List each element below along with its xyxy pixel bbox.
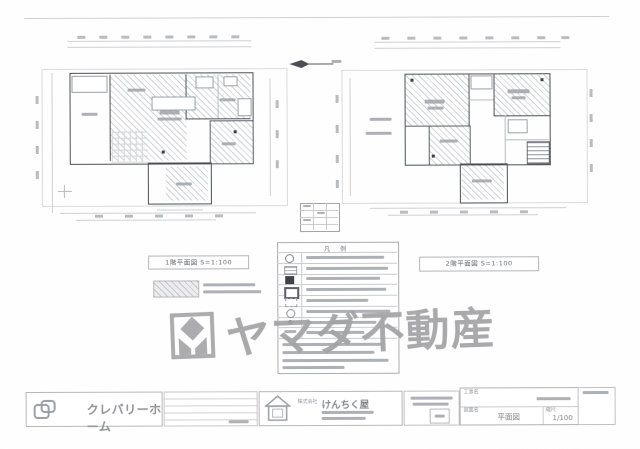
sheet-number-box: [578, 387, 616, 425]
room-label: [428, 107, 444, 110]
dimension-line: [374, 41, 560, 43]
dimension-line: [67, 46, 251, 48]
company-address: [322, 411, 374, 414]
builder-box: 株式会社 けんちく屋: [259, 391, 403, 427]
dimension-tick: [276, 130, 279, 138]
area-table: [0, 0, 639, 1]
deck-grid: [112, 131, 148, 163]
dimension-tick: [561, 36, 569, 39]
title-block: クレバリーホーム 株式会社 けんちく屋: [0, 0, 639, 1]
north-arrow-label: [331, 60, 341, 63]
dimension-tick: [36, 121, 39, 129]
column-dot: [432, 155, 435, 158]
legend-symbol-lined-box: [284, 266, 297, 275]
dimension-tick: [187, 35, 195, 38]
roof-label: [366, 132, 392, 135]
dimension-tick: [36, 96, 39, 104]
room-label: [512, 96, 526, 99]
stamp-box: [430, 409, 450, 424]
table-cell-text: [303, 219, 311, 221]
dimension-line: [388, 214, 538, 216]
dimension-tick: [485, 36, 493, 39]
dimension-tick: [520, 210, 528, 213]
dimension-tick: [215, 214, 223, 217]
dimension-tick: [336, 125, 339, 133]
dimension-tick: [121, 36, 129, 39]
dimension-tick: [590, 164, 593, 172]
room-label: [160, 110, 180, 114]
dimension-tick: [36, 171, 39, 179]
dimension-tick: [143, 36, 151, 39]
company-phone: [322, 417, 366, 420]
column-dot: [234, 130, 237, 133]
drawing-label: 図面名: [464, 408, 479, 413]
sheet-top-border: [24, 16, 609, 19]
north-arrow-icon: [287, 56, 335, 72]
roof-label: [370, 118, 392, 121]
cleverly-logo-icon: [33, 399, 59, 421]
stamp-text: [435, 415, 445, 418]
approval-box: [404, 391, 460, 426]
fixture: [238, 98, 252, 116]
survey-cross: [64, 185, 65, 198]
room-center: [429, 125, 471, 165]
dimension-line: [76, 219, 216, 220]
table-cell-text: [317, 212, 325, 214]
dimension-tick: [590, 89, 593, 97]
dimension-tick: [125, 215, 133, 218]
dimension-tick: [336, 95, 339, 103]
staircase: [527, 141, 550, 164]
column-dot: [540, 78, 543, 81]
fixture: [508, 119, 528, 133]
legend-note: [282, 366, 344, 369]
room-label: [128, 89, 146, 92]
dimension-tick: [511, 36, 519, 39]
partition-wall: [217, 74, 219, 118]
porch-step: [157, 209, 203, 210]
fixture: [223, 76, 237, 86]
drawing-info-box: 工事名 図面名 平面図 縮尺 1/100: [460, 387, 580, 425]
caption-plan-1f: 1階平面図 S=1:100: [148, 255, 249, 269]
company-name: けんちく屋: [322, 397, 370, 411]
porch-step: [152, 205, 208, 206]
dimension-tick: [433, 37, 441, 40]
brand-text: クレバリーホーム: [87, 401, 162, 435]
scale-label: 縮尺: [546, 408, 556, 413]
drawing-sheet: 1階平面図 S=1:100 2階平面図 S=1:100 凡 例: [0, 0, 640, 449]
dimension-line: [370, 207, 566, 209]
room-label: [425, 100, 445, 104]
room-label: [220, 98, 236, 101]
yamada-logo-icon: [169, 311, 219, 361]
closet: [71, 76, 107, 93]
caption-plan-2f: 2階平面図 S=1:100: [419, 256, 539, 271]
floor-plan-2f: [0, 0, 639, 1]
swatch-note-line: [203, 290, 261, 293]
legend-symbol-filled-box: [285, 276, 294, 284]
kitchen-counter: [152, 96, 196, 110]
drawing-name: 平面図: [479, 411, 539, 422]
approval-text: [413, 403, 449, 406]
dimension-tick: [77, 36, 85, 39]
room-label: [158, 117, 182, 120]
dimension-tick: [590, 139, 593, 147]
project-label: 工事名: [464, 390, 479, 395]
rule-line: [165, 398, 257, 399]
table-cell-text: [303, 205, 311, 207]
dimension-tick: [209, 35, 217, 38]
dimension-tick: [165, 36, 173, 39]
dimension-tick: [336, 155, 339, 163]
house-icon: [265, 395, 291, 422]
project-value: [537, 397, 571, 400]
brand-box: クレバリーホーム: [26, 392, 163, 427]
fixture: [195, 76, 213, 88]
dimension-tick: [590, 114, 593, 122]
rule-line: [165, 405, 257, 406]
dimension-tick: [400, 211, 408, 214]
dimension-tick: [36, 146, 39, 154]
hatch-swatch: [153, 280, 199, 297]
legend-symbol-circle: [285, 254, 294, 263]
floor-plan-1f: [0, 0, 639, 1]
room-label: [472, 179, 492, 182]
dimension-tick: [155, 215, 163, 218]
dimension-line: [67, 40, 251, 42]
dimension-tick: [336, 180, 339, 188]
dimension-tick: [95, 215, 103, 218]
table-line: [300, 210, 338, 211]
column-dot: [410, 79, 413, 82]
watermark-text: ヤマダ不動産: [224, 292, 496, 366]
dimension-line: [374, 47, 560, 49]
revision-box: [164, 391, 258, 426]
closet: [470, 75, 492, 89]
legend-row-text: [306, 288, 386, 291]
legend-row-text: [306, 256, 384, 259]
dimension-tick: [231, 35, 239, 38]
scale-value: 1/100: [549, 414, 577, 422]
dimension-tick: [537, 36, 545, 39]
dimension-tick: [490, 210, 498, 213]
dimension-tick: [407, 37, 415, 40]
table-line: [300, 224, 338, 225]
column-dot: [162, 151, 165, 154]
partition: [469, 99, 494, 100]
dimension-tick: [460, 210, 468, 213]
dimension-tick: [459, 36, 467, 39]
room-label: [508, 89, 530, 93]
legend-row-text: [306, 277, 380, 280]
dimension-tick: [430, 211, 438, 214]
scanned-drawing-page: 1階平面図 S=1:100 2階平面図 S=1:100 凡 例: [0, 0, 640, 449]
legend-table: 凡 例: [0, 0, 639, 1]
sheet-number-text: [583, 391, 609, 394]
dimension-tick: [185, 214, 193, 217]
dimension-tick: [99, 36, 107, 39]
room-label: [176, 182, 192, 185]
rule-note: [229, 420, 249, 423]
legend-row-text: [306, 267, 388, 270]
room-label: [440, 140, 458, 143]
swatch-note-line: [203, 283, 255, 286]
info-divider: [543, 406, 544, 424]
room-label: [82, 113, 98, 116]
dimension-tick: [276, 100, 279, 108]
rule-line: [165, 412, 257, 413]
room-label: [222, 142, 236, 145]
dimension-tick: [276, 160, 279, 168]
company-prefix: 株式会社: [298, 400, 318, 405]
table-line: [300, 217, 338, 218]
dimension-tick: [381, 37, 389, 40]
approval-text: [411, 397, 453, 400]
